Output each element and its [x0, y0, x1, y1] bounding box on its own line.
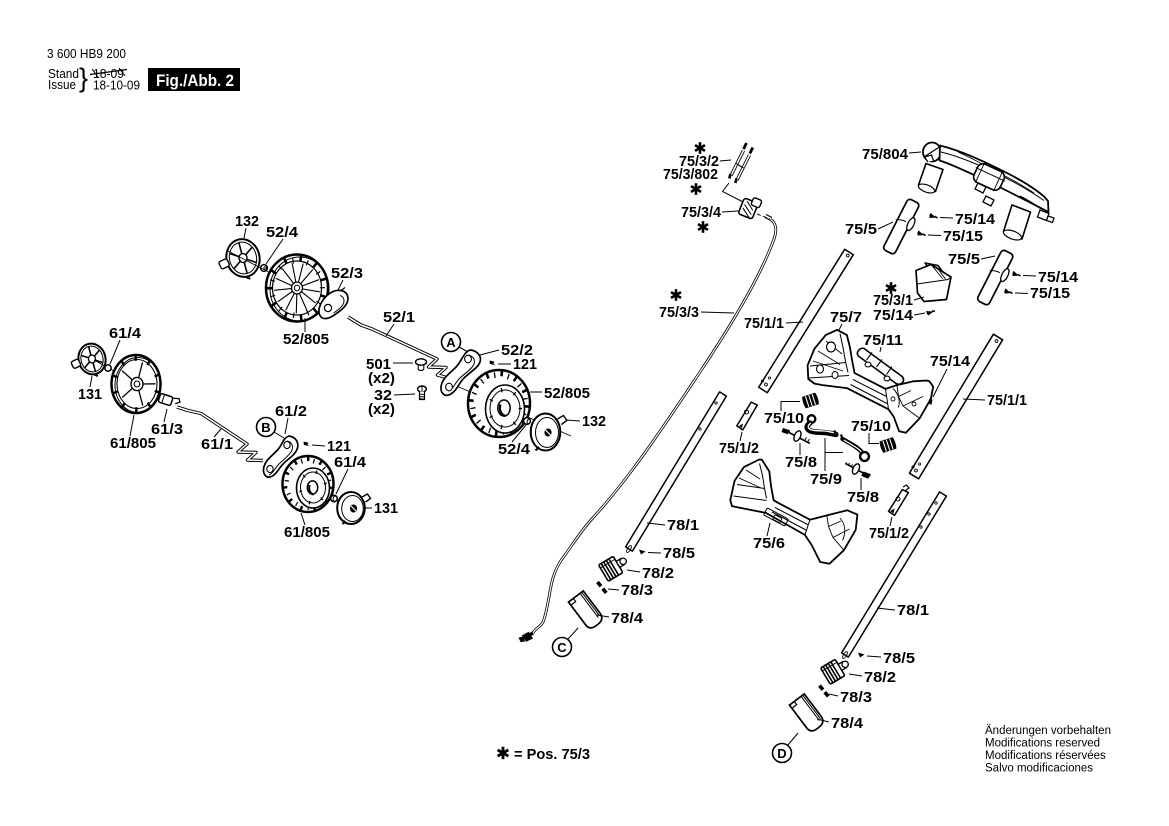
svg-text:75/11: 75/11: [863, 332, 903, 349]
svg-text:78/3: 78/3: [840, 689, 872, 706]
svg-text:61/4: 61/4: [334, 454, 367, 471]
svg-text:61/1: 61/1: [201, 436, 233, 453]
svg-text:75/804: 75/804: [862, 146, 909, 163]
svg-text:75/3/802: 75/3/802: [663, 166, 718, 183]
svg-text:75/10: 75/10: [851, 418, 891, 435]
svg-text:75/14: 75/14: [1038, 269, 1079, 286]
svg-text:78/4: 78/4: [831, 715, 864, 732]
svg-text:75/1/1: 75/1/1: [987, 392, 1027, 409]
svg-text:75/7: 75/7: [830, 309, 862, 326]
svg-text:Fig./Abb. 2: Fig./Abb. 2: [156, 71, 234, 90]
svg-text:78/5: 78/5: [883, 650, 915, 667]
svg-text:75/5: 75/5: [948, 251, 980, 268]
svg-text:B: B: [261, 420, 270, 435]
svg-text:A: A: [446, 335, 456, 350]
svg-text:61/805: 61/805: [284, 524, 330, 541]
svg-text:121: 121: [513, 356, 537, 373]
svg-text:3 600 HB9 200: 3 600 HB9 200: [47, 47, 126, 61]
svg-text:52/4: 52/4: [266, 224, 299, 241]
svg-text:(x2): (x2): [368, 401, 395, 418]
svg-text:61/4: 61/4: [109, 325, 142, 342]
svg-text:75/15: 75/15: [1030, 285, 1070, 302]
svg-text:131: 131: [78, 386, 102, 403]
svg-text:75/14: 75/14: [873, 307, 914, 324]
svg-text:75/1/2: 75/1/2: [869, 525, 909, 542]
svg-text:Salvo modificaciones: Salvo modificaciones: [985, 763, 1093, 775]
svg-text:78/2: 78/2: [864, 669, 896, 686]
svg-text:Änderungen vorbehalten: Änderungen vorbehalten: [985, 725, 1111, 737]
svg-text:Modifications réservées: Modifications réservées: [985, 750, 1106, 762]
svg-text:78/1: 78/1: [897, 602, 929, 619]
svg-text:75/8: 75/8: [847, 489, 879, 506]
svg-text:Issue: Issue: [48, 78, 76, 92]
svg-text:75/6: 75/6: [753, 535, 785, 552]
svg-text:121: 121: [327, 438, 351, 455]
svg-text:75/15: 75/15: [943, 228, 983, 245]
svg-text:78/5: 78/5: [663, 545, 695, 562]
svg-text:78/1: 78/1: [667, 517, 699, 534]
svg-text:61/2: 61/2: [275, 403, 307, 420]
svg-text:75/10: 75/10: [764, 410, 804, 427]
svg-text:52/3: 52/3: [331, 265, 363, 282]
svg-text:75/5: 75/5: [845, 221, 877, 238]
svg-text:Modifications reserved: Modifications reserved: [985, 738, 1100, 750]
svg-text:75/3/4: 75/3/4: [681, 204, 722, 221]
svg-text:131: 131: [374, 500, 398, 517]
svg-text:= Pos. 75/3: = Pos. 75/3: [514, 746, 590, 763]
svg-text:132: 132: [235, 213, 259, 230]
svg-text:52/805: 52/805: [544, 385, 590, 402]
svg-text:52/4: 52/4: [498, 441, 531, 458]
svg-text:132: 132: [582, 413, 606, 430]
svg-text:(x2): (x2): [368, 370, 395, 387]
svg-text:}: }: [79, 63, 88, 93]
svg-text:75/1/1: 75/1/1: [744, 315, 784, 332]
svg-text:61/3: 61/3: [151, 421, 183, 438]
svg-text:78/3: 78/3: [621, 582, 653, 599]
svg-text:75/14: 75/14: [930, 353, 971, 370]
svg-text:D: D: [777, 746, 786, 761]
svg-text:75/8: 75/8: [785, 454, 817, 471]
svg-text:18-10-09: 18-10-09: [93, 79, 140, 93]
svg-text:75/3/3: 75/3/3: [659, 304, 699, 321]
svg-text:75/1/2: 75/1/2: [719, 440, 759, 457]
svg-text:52/805: 52/805: [283, 331, 329, 348]
svg-text:61/805: 61/805: [110, 435, 156, 452]
svg-text:78/4: 78/4: [611, 610, 644, 627]
svg-text:C: C: [557, 640, 567, 655]
svg-text:75/9: 75/9: [810, 471, 842, 488]
svg-text:52/1: 52/1: [383, 309, 415, 326]
svg-text:75/14: 75/14: [955, 211, 996, 228]
svg-text:78/2: 78/2: [642, 565, 674, 582]
